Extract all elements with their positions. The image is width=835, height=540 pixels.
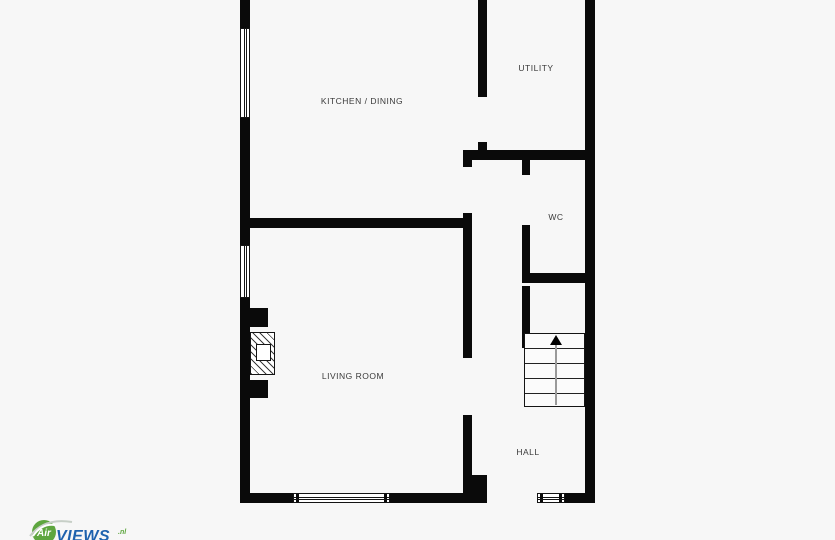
fireplace-opening	[256, 344, 271, 361]
wall-left-top	[240, 0, 250, 28]
wall-left-bottom	[240, 298, 250, 503]
wall-kitchen-living-divider	[245, 218, 467, 228]
wall-kitchen-utility-divider	[478, 0, 487, 97]
logo-brand-text: VIEWS	[56, 528, 110, 540]
floor-plan-canvas: KITCHEN / DINING UTILITY WC LIVING ROOM …	[0, 0, 835, 540]
window-cap-icon	[296, 494, 299, 502]
logo-suffix-text: .nl	[118, 529, 127, 536]
wall-utility-bottom	[463, 150, 595, 160]
window-living-front	[293, 493, 390, 503]
wall-bottom-right-segment	[565, 493, 595, 503]
wall-hall-left-cap	[463, 150, 472, 167]
wall-wc-partition-upper	[522, 160, 530, 175]
stair-direction-line	[555, 337, 557, 405]
window-kitchen-left	[240, 28, 250, 118]
chimney-breast-bottom	[250, 380, 268, 398]
room-label-wc: WC	[548, 212, 563, 222]
wall-hall-left-middle	[463, 213, 472, 358]
logo-circle-text: Air	[36, 528, 52, 539]
window-cap-icon	[559, 494, 562, 502]
window-cap-icon	[384, 494, 387, 502]
stair-up-arrow-icon	[550, 335, 562, 345]
staircase	[524, 333, 585, 407]
room-label-kitchen-dining: KITCHEN / DINING	[321, 96, 403, 106]
chimney-breast-top	[250, 308, 268, 327]
wall-bottom-left-segment	[240, 493, 293, 503]
window-hall-front	[537, 493, 565, 503]
room-label-hall: HALL	[516, 447, 539, 457]
brand-logo: Air VIEWS .nl	[28, 517, 148, 540]
wall-right	[585, 0, 595, 503]
wall-front-door-block	[463, 475, 487, 503]
fireplace-hearth-icon	[250, 332, 275, 375]
wall-kitchen-utility-divider-stub	[478, 142, 487, 150]
room-label-utility: UTILITY	[518, 63, 553, 73]
window-cap-icon	[540, 494, 543, 502]
room-label-living-room: LIVING ROOM	[322, 371, 384, 381]
wall-wc-bottom	[522, 273, 595, 283]
window-living-left	[240, 245, 250, 298]
